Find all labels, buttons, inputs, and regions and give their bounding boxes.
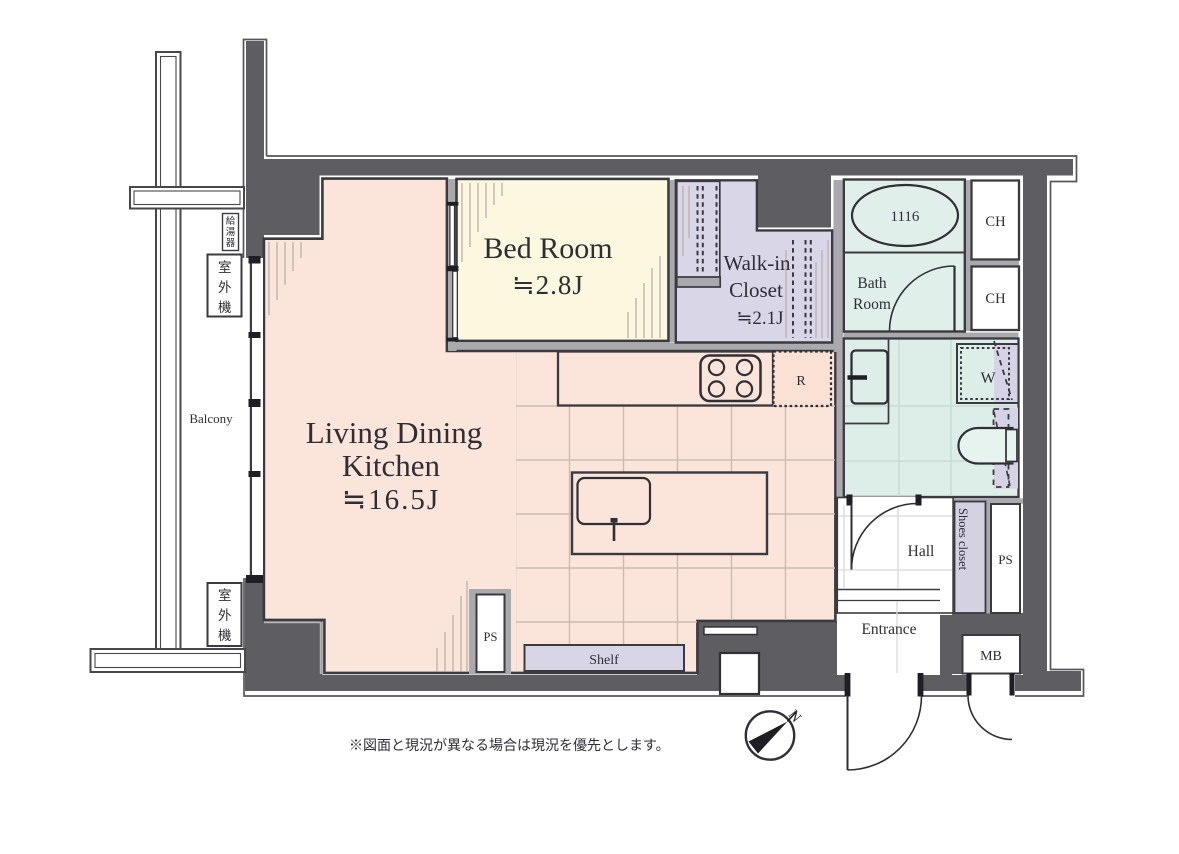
svg-text:機: 機 [218,300,232,315]
svg-text:CH: CH [985,291,1006,307]
svg-text:Balcony: Balcony [189,411,233,426]
svg-text:Room: Room [853,296,891,313]
svg-text:Living Dining: Living Dining [306,415,483,450]
svg-text:Entrance: Entrance [861,621,916,638]
svg-text:Kitchen: Kitchen [342,448,441,483]
svg-text:Shelf: Shelf [589,653,619,668]
svg-text:器: 器 [226,238,236,249]
svg-text:CH: CH [985,214,1006,230]
svg-text:給: 給 [226,215,236,227]
svg-text:≒16.5J: ≒16.5J [342,484,440,516]
svg-text:湯: 湯 [226,226,236,238]
svg-text:室: 室 [218,259,232,275]
svg-text:≒2.8J: ≒2.8J [512,270,584,300]
svg-text:≒2.1J: ≒2.1J [736,308,783,329]
svg-text:W: W [980,370,996,387]
svg-text:機: 機 [218,628,232,643]
svg-text:※図面と現況が異なる場合は現況を優先とします。: ※図面と現況が異なる場合は現況を優先とします。 [349,737,670,753]
svg-text:外: 外 [218,608,232,623]
svg-text:R: R [796,374,806,389]
svg-text:Bath: Bath [857,275,887,292]
svg-text:1116: 1116 [891,209,920,225]
svg-text:外: 外 [218,280,232,295]
svg-text:Closet: Closet [729,278,783,302]
svg-text:PS: PS [484,630,498,644]
svg-text:MB: MB [980,649,1002,664]
svg-text:PS: PS [998,552,1012,567]
svg-text:Bed Room: Bed Room [483,232,612,265]
svg-text:Walk-in: Walk-in [723,251,791,275]
svg-text:Shoes closet: Shoes closet [956,508,970,571]
svg-text:Hall: Hall [908,543,935,560]
svg-text:室: 室 [218,587,232,603]
